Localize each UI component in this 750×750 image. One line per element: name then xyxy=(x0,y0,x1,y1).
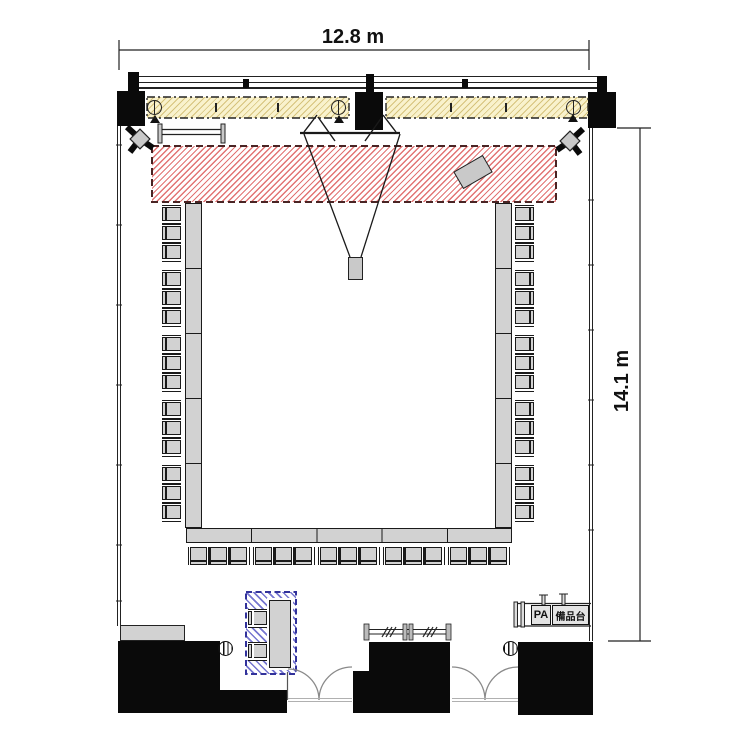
entrance-door-right xyxy=(452,667,518,700)
entrance-door-left xyxy=(288,667,353,700)
round-stool xyxy=(503,641,518,656)
coat-rack xyxy=(364,624,451,640)
pa-box: PA xyxy=(531,605,551,625)
wall-joint-ticks xyxy=(116,145,594,601)
door-thresholds xyxy=(288,699,518,702)
floor-plan: 12.8 m 14.1 m PA 備品台 xyxy=(0,0,750,750)
dimension-width-label: 12.8 m xyxy=(288,26,418,49)
equipment-stand-box: 備品台 xyxy=(552,605,589,625)
linework-layer xyxy=(0,0,750,750)
zone-borders xyxy=(147,97,588,674)
equipment-stand-label: 備品台 xyxy=(556,608,586,623)
dimension-height-label: 14.1 m xyxy=(611,331,635,431)
speaker-left-icon xyxy=(127,127,153,152)
projection-screen xyxy=(300,115,400,257)
round-stool xyxy=(218,641,233,656)
speaker-right-icon xyxy=(557,129,583,154)
pa-label: PA xyxy=(534,609,548,621)
whiteboard-symbol xyxy=(158,124,225,143)
